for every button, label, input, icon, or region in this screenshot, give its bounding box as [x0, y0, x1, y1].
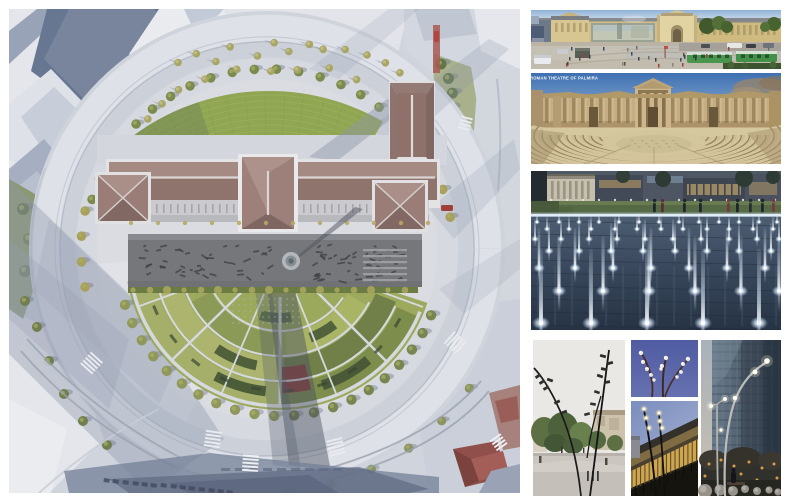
svg-text:ROMAN THEATRE OF PALMIRA: ROMAN THEATRE OF PALMIRA: [531, 76, 598, 81]
